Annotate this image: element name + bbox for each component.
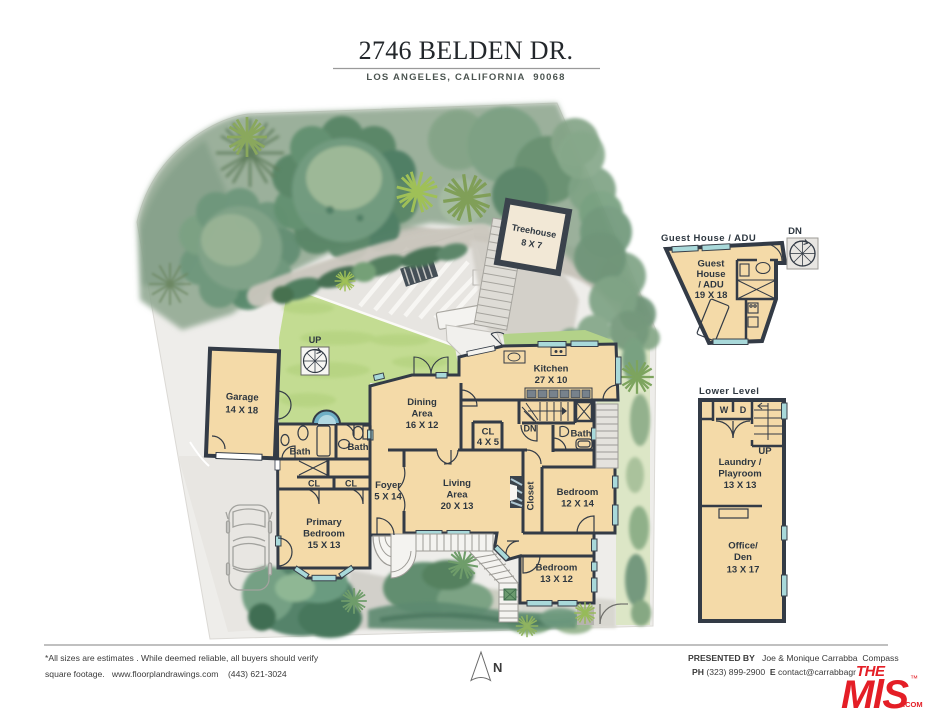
svg-text:Area: Area	[446, 490, 468, 501]
svg-text:Bedroom: Bedroom	[303, 529, 345, 540]
svg-text:19 X 18: 19 X 18	[695, 290, 728, 301]
svg-text:13 X 12: 13 X 12	[540, 574, 573, 585]
svg-text:Guest: Guest	[698, 259, 726, 270]
svg-text:MlS: MlS	[841, 673, 909, 717]
svg-text:House: House	[696, 269, 725, 280]
svg-text:Bath: Bath	[347, 442, 368, 453]
svg-text:12 X 14: 12 X 14	[561, 499, 594, 510]
svg-text:DN: DN	[524, 424, 537, 434]
svg-text:Kitchen: Kitchen	[534, 364, 569, 375]
svg-text:CL: CL	[308, 479, 320, 489]
svg-text:Guest House / ADU: Guest House / ADU	[661, 233, 756, 244]
svg-text:LOS ANGELES, CALIFORNIA 90068: LOS ANGELES, CALIFORNIA 90068	[366, 72, 565, 83]
svg-text:13 X 13: 13 X 13	[724, 480, 757, 491]
svg-text:5 X 14: 5 X 14	[374, 492, 402, 503]
svg-text:Playroom: Playroom	[718, 469, 761, 480]
svg-text:Bath: Bath	[289, 447, 310, 458]
svg-text:CL: CL	[482, 427, 495, 438]
svg-text:Bath: Bath	[570, 429, 591, 440]
svg-text:Bedroom: Bedroom	[557, 487, 599, 498]
svg-text:15 X 13: 15 X 13	[308, 540, 341, 551]
svg-text:2746 BELDEN DR.: 2746 BELDEN DR.	[359, 36, 574, 65]
svg-text:.COM: .COM	[903, 700, 923, 709]
svg-text:20 X 13: 20 X 13	[441, 501, 474, 512]
svg-text:Lower Level: Lower Level	[699, 386, 759, 397]
svg-text:™: ™	[910, 674, 918, 683]
svg-text:27 X 10: 27 X 10	[535, 375, 568, 386]
svg-text:UP: UP	[309, 335, 322, 345]
svg-text:CL: CL	[345, 479, 357, 489]
svg-text:16 X 12: 16 X 12	[406, 420, 439, 431]
svg-text:W: W	[720, 405, 729, 415]
svg-text:DN: DN	[788, 226, 802, 237]
svg-text:4 X 5: 4 X 5	[477, 437, 500, 448]
svg-text:Laundry /: Laundry /	[719, 457, 762, 468]
svg-text:14 X 18: 14 X 18	[225, 404, 258, 416]
svg-text:N: N	[493, 660, 502, 675]
svg-text:Office/: Office/	[728, 541, 758, 552]
svg-text:Closet: Closet	[526, 481, 537, 511]
svg-text:*All sizes are estimates . Whi: *All sizes are estimates . While deemed …	[45, 653, 319, 663]
svg-text:Primary: Primary	[306, 517, 342, 528]
svg-text:13 X 17: 13 X 17	[727, 565, 760, 576]
svg-text:square footage. www.floorpla: square footage. www.floorplandrawings.co…	[45, 669, 287, 679]
svg-text:Foyer: Foyer	[375, 480, 401, 491]
svg-text:PH (323) 899-2900 E contact@c: PH (323) 899-2900 E contact@carrabbagr	[692, 667, 856, 677]
svg-text:/ ADU: / ADU	[698, 280, 724, 291]
svg-text:Dining: Dining	[407, 397, 437, 408]
svg-text:Area: Area	[411, 409, 433, 420]
svg-text:Bedroom: Bedroom	[536, 563, 578, 574]
svg-text:Garage: Garage	[226, 391, 259, 403]
svg-text:Living: Living	[443, 478, 471, 489]
svg-text:D: D	[740, 405, 747, 415]
svg-text:Den: Den	[734, 552, 752, 563]
svg-text:PRESENTED BY Joe & Monique C: PRESENTED BY Joe & Monique Carrabba Comp…	[688, 653, 899, 663]
svg-text:UP: UP	[758, 446, 772, 457]
